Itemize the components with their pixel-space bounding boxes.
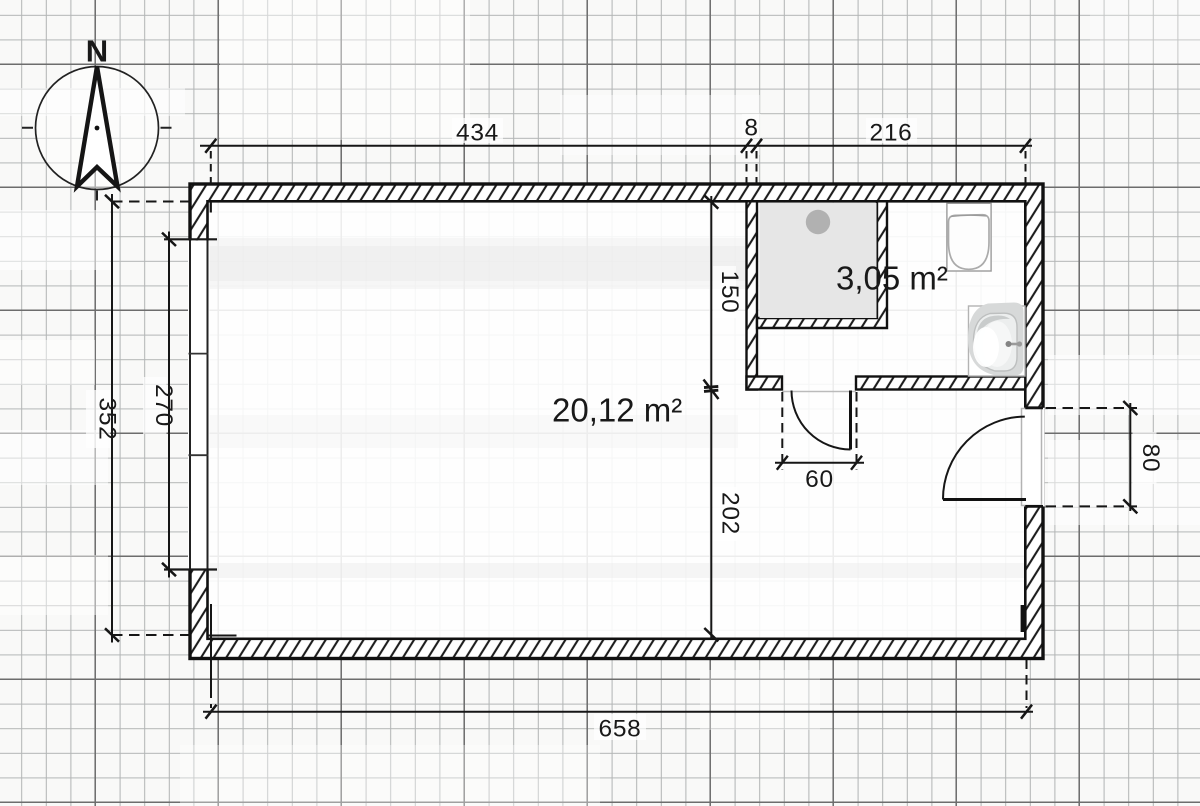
svg-text:20,12 m²: 20,12 m² [552,392,682,429]
svg-text:3,05 m²: 3,05 m² [836,260,948,297]
svg-text:216: 216 [870,120,913,147]
svg-text:N: N [86,34,108,69]
svg-text:202: 202 [717,492,744,535]
svg-text:8: 8 [744,115,758,142]
svg-text:434: 434 [456,120,499,147]
svg-text:60: 60 [805,466,834,493]
svg-text:270: 270 [150,384,177,427]
svg-text:352: 352 [94,398,121,441]
svg-text:658: 658 [599,716,642,743]
svg-text:80: 80 [1137,444,1164,473]
svg-text:150: 150 [716,271,743,314]
